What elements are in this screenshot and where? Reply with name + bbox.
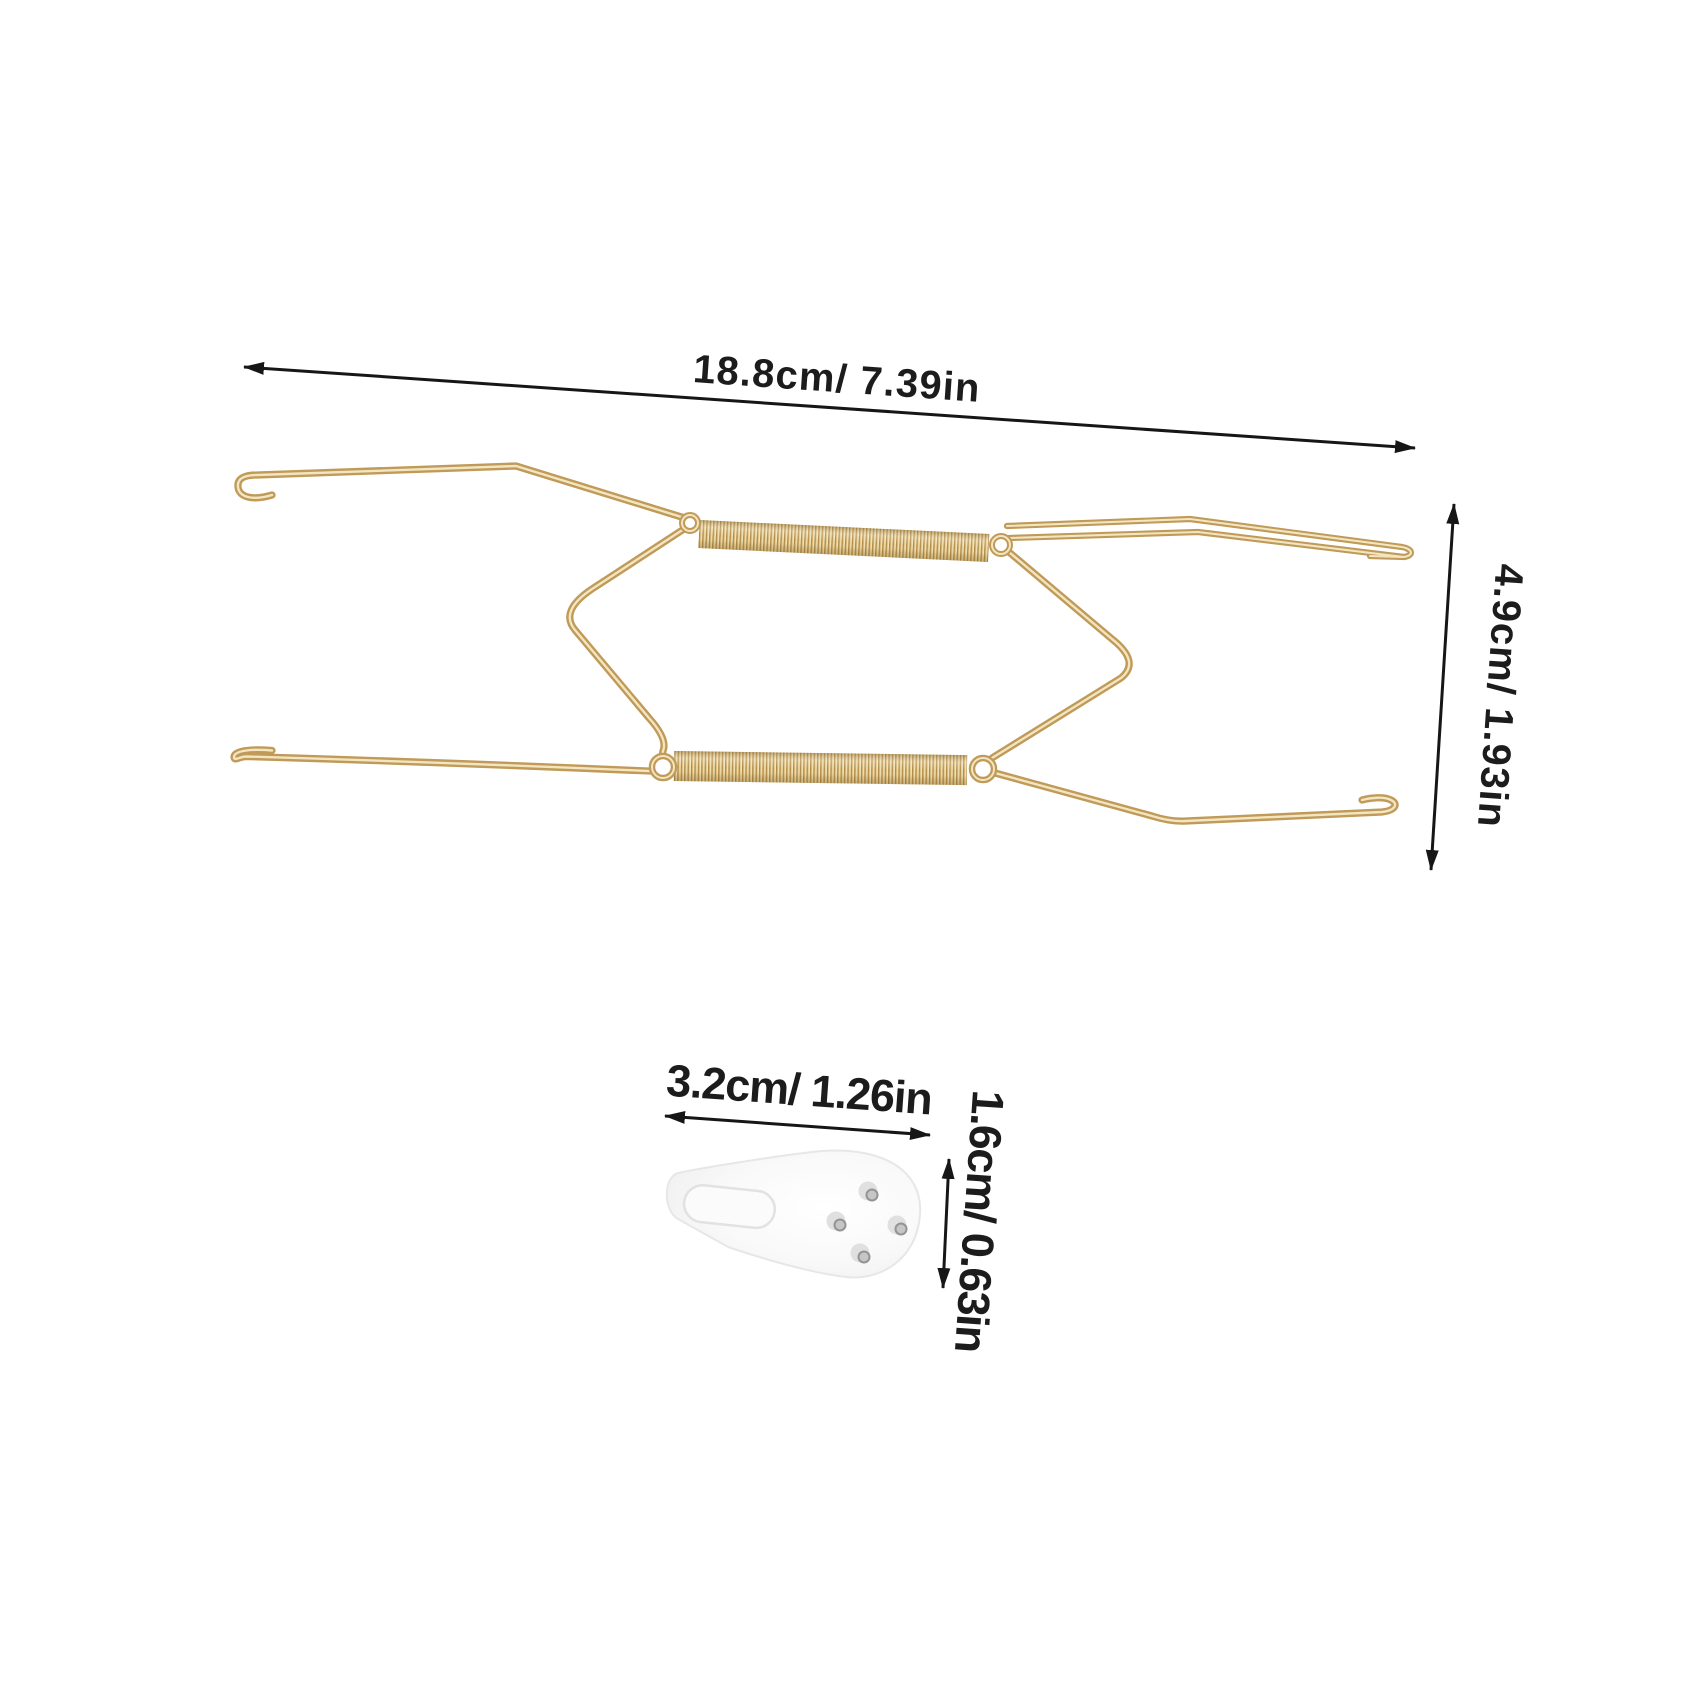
svg-text:1.6cm/ 0.63in: 1.6cm/ 0.63in [945,1089,1014,1354]
svg-text:4.9cm/ 1.93in: 4.9cm/ 1.93in [1469,562,1531,829]
svg-text:3.2cm/ 1.26in: 3.2cm/ 1.26in [665,1055,934,1125]
